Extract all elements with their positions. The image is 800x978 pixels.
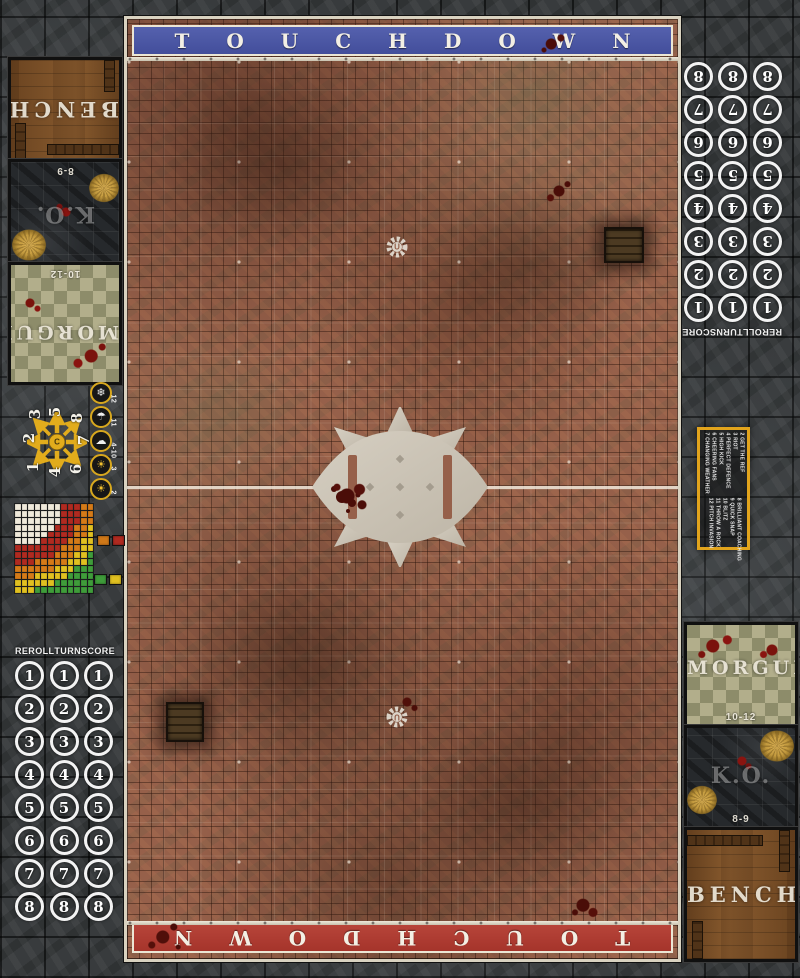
ruler-cell-short-pass [55, 525, 61, 531]
ruler-cell-out-of-range [88, 552, 94, 558]
ruler-cell-out-of-range [61, 580, 67, 586]
ruler-cell-quick-pass [15, 532, 21, 538]
ruler-cell-short-pass [55, 545, 61, 551]
morgue-range-label: 10-12 [11, 268, 119, 279]
counter-circle-2: 2 [684, 260, 713, 289]
counter-circle-3: 3 [684, 227, 713, 256]
ruler-chip [112, 535, 125, 546]
ruler-cell-long-pass [61, 545, 67, 551]
ruler-cell-long-pass [88, 511, 94, 517]
ruler-cell-long-bomb [41, 580, 47, 586]
gear-icon: U [384, 234, 410, 260]
counter-row: 777 [15, 859, 113, 888]
ruler-cell-out-of-range [88, 587, 94, 593]
morgue-range-label: 10-12 [687, 712, 795, 723]
counter-circle-2: 2 [753, 260, 782, 289]
ruler-chip [97, 535, 110, 546]
ko-range-label: 8-9 [11, 165, 119, 176]
ruler-chips-a [97, 535, 125, 546]
ruler-cell-long-pass [48, 559, 54, 565]
weather-track: ❄12☂11☁4-10☀3☀2 [90, 381, 124, 501]
ruler-cell-quick-pass [22, 525, 28, 531]
dugout-ko-bottom: K.O. 8-9 [684, 725, 798, 831]
counter-circle-4: 4 [719, 194, 748, 223]
ruler-cell-short-pass [28, 545, 34, 551]
kickoff-entry: 7 CHANGING WEATHER [703, 432, 710, 493]
counter-circle-4: 4 [50, 760, 79, 789]
ruler-cell-quick-pass [55, 504, 61, 510]
ruler-chips-b [94, 574, 122, 585]
ruler-cell-long-bomb [28, 580, 34, 586]
ruler-cell-short-pass [61, 525, 67, 531]
touchdown-text-bottom: TOUCHDOWN [137, 926, 667, 950]
touchdown-banner-top: TOUCHDOWN [132, 25, 673, 56]
scatter-direction-4: 4 [46, 467, 64, 477]
ruler-cell-out-of-range [68, 573, 74, 579]
counter-header: TURN [716, 327, 743, 337]
dugout-bench-bottom: BENCH [684, 827, 798, 962]
kickoff-column-1: 2 GET THE REF3 RIOT4 PERFECT DEFENCE5 HI… [702, 432, 745, 493]
ruler-cell-long-pass [61, 559, 67, 565]
pitch-stain [427, 189, 637, 339]
counter-row: 333 [684, 227, 782, 256]
ruler-cell-short-pass [68, 518, 74, 524]
ruler-cell-quick-pass [55, 518, 61, 524]
ruler-cell-long-pass [88, 504, 94, 510]
ruler-cell-short-pass [61, 511, 67, 517]
scatter-direction-2: 2 [20, 433, 38, 443]
ruler-cell-long-bomb [88, 532, 94, 538]
counter-row: 888 [15, 892, 113, 921]
ruler-cell-quick-pass [28, 518, 34, 524]
ruler-cell-short-pass [35, 545, 41, 551]
ruler-cell-short-pass [41, 538, 47, 544]
weather-range: 2 [110, 491, 117, 495]
ruler-cell-out-of-range [81, 566, 87, 572]
counter-circle-1: 1 [84, 661, 113, 690]
ruler-cell-out-of-range [74, 587, 80, 593]
counter-circle-5: 5 [15, 793, 44, 822]
kickoff-entry: 6 CHEERING FANS [710, 432, 717, 493]
kickoff-entry: 5 HIGH KICK [717, 432, 724, 493]
counter-circle-3: 3 [84, 727, 113, 756]
ruler-cell-short-pass [61, 538, 67, 544]
ko-range-label: 8-9 [687, 814, 795, 825]
counter-circle-7: 7 [719, 95, 748, 124]
touchdown-banner-bottom: TOUCHDOWN [132, 922, 673, 953]
ruler-cell-long-bomb [88, 525, 94, 531]
spiked-ball-emblem [300, 407, 500, 567]
counter-row: 444 [684, 194, 782, 223]
ruler-cell-short-pass [22, 559, 28, 565]
ruler-cell-long-bomb [15, 580, 21, 586]
counter-row: 111 [684, 293, 782, 322]
weather-range: 12 [110, 395, 117, 404]
ruler-cell-short-pass [22, 545, 28, 551]
ruler-cell-short-pass [15, 545, 21, 551]
ruler-cell-long-pass [74, 538, 80, 544]
counter-header: TURN [54, 646, 81, 656]
pitch-stain [187, 579, 427, 769]
ruler-cell-out-of-range [74, 573, 80, 579]
ruler-cell-quick-pass [41, 504, 47, 510]
ruler-cell-long-bomb [81, 552, 87, 558]
scatter-center-glyph: C [54, 438, 60, 447]
ruler-cell-quick-pass [28, 538, 34, 544]
ruler-cell-short-pass [48, 538, 54, 544]
ruler-cell-quick-pass [48, 504, 54, 510]
ruler-cell-long-pass [22, 566, 28, 572]
counter-row: 333 [15, 727, 113, 756]
ruler-cell-out-of-range [88, 580, 94, 586]
weather-row: ☀3 [90, 453, 124, 477]
weather-row: ❄12 [90, 381, 124, 405]
ruler-cell-short-pass [68, 525, 74, 531]
counter-circle-6: 6 [753, 128, 782, 157]
counter-circle-1: 1 [719, 293, 748, 322]
svg-text:U: U [394, 243, 400, 252]
ruler-cell-long-bomb [48, 580, 54, 586]
ruler-cell-long-bomb [81, 559, 87, 565]
ruler-cell-long-pass [81, 504, 87, 510]
ruler-chip [94, 574, 107, 585]
counter-circle-7: 7 [753, 95, 782, 124]
counter-circle-7: 7 [684, 95, 713, 124]
ruler-cell-long-bomb [28, 587, 34, 593]
ruler-cell-quick-pass [48, 511, 54, 517]
ruler-cell-short-pass [74, 518, 80, 524]
weather-row: ☀2 [90, 477, 124, 501]
ruler-cell-quick-pass [22, 511, 28, 517]
ruler-cell-quick-pass [48, 525, 54, 531]
ruler-cell-short-pass [22, 552, 28, 558]
ruler-cell-quick-pass [41, 525, 47, 531]
ruler-cell-long-pass [81, 518, 87, 524]
ruler-cell-out-of-range [74, 580, 80, 586]
ruler-cell-long-bomb [88, 545, 94, 551]
ruler-cell-long-pass [22, 573, 28, 579]
ruler-cell-short-pass [48, 532, 54, 538]
counter-circle-8: 8 [50, 892, 79, 921]
counter-circle-6: 6 [684, 128, 713, 157]
counter-headers: REROLLTURNSCORE [15, 646, 113, 656]
ruler-cell-long-pass [81, 525, 87, 531]
ruler-cell-quick-pass [41, 518, 47, 524]
ruler-cell-out-of-range [88, 559, 94, 565]
ruler-cell-long-bomb [68, 566, 74, 572]
range-ruler [14, 503, 94, 594]
counter-circle-7: 7 [50, 859, 79, 888]
counter-circle-5: 5 [684, 161, 713, 190]
ruler-cell-long-pass [74, 525, 80, 531]
kickoff-entry: 8 BRILLIANT COACHING [734, 497, 741, 560]
counter-circle-1: 1 [15, 661, 44, 690]
ruler-cell-long-pass [41, 559, 47, 565]
bench-label: BENCH [687, 882, 795, 907]
gear-icon: U [384, 704, 410, 730]
ruler-cell-long-pass [35, 559, 41, 565]
ruler-cell-quick-pass [15, 518, 21, 524]
blood-splatter [565, 889, 605, 925]
ruler-cell-long-pass [15, 573, 21, 579]
ruler-cell-out-of-range [41, 587, 47, 593]
weather-row: ☁4-10 [90, 429, 124, 453]
ruler-cell-quick-pass [28, 504, 34, 510]
counter-circle-4: 4 [684, 194, 713, 223]
ruler-cell-short-pass [15, 552, 21, 558]
counter-circle-7: 7 [84, 859, 113, 888]
ruler-cell-long-pass [55, 559, 61, 565]
ruler-cell-short-pass [41, 545, 47, 551]
ruler-cell-out-of-range [48, 587, 54, 593]
counter-panel-bottom: REROLLTURNSCORE111222333444555666777888 [15, 646, 113, 925]
counter-row: 444 [15, 760, 113, 789]
scatter-direction-3: 3 [26, 409, 44, 419]
ruler-cell-short-pass [48, 545, 54, 551]
svg-text:U: U [394, 712, 400, 721]
ruler-cell-quick-pass [41, 532, 47, 538]
ruler-cell-long-bomb [81, 538, 87, 544]
ruler-cell-short-pass [61, 518, 67, 524]
blood-splatter [542, 174, 576, 208]
ruler-cell-quick-pass [22, 538, 28, 544]
counter-row: 666 [684, 128, 782, 157]
ruler-cell-long-pass [68, 538, 74, 544]
ruler-cell-short-pass [48, 552, 54, 558]
counter-panel-top: REROLLTURNSCORE111222333444555666777888 [684, 58, 782, 337]
ruler-cell-quick-pass [35, 525, 41, 531]
ruler-cell-long-pass [68, 552, 74, 558]
ruler-cell-quick-pass [35, 511, 41, 517]
ruler-cell-long-pass [61, 552, 67, 558]
ruler-cell-out-of-range [35, 587, 41, 593]
ruler-cell-short-pass [68, 504, 74, 510]
ruler-cell-short-pass [41, 552, 47, 558]
ruler-cell-quick-pass [35, 532, 41, 538]
kickoff-entry: 3 RIOT [731, 432, 738, 493]
counter-row: 555 [15, 793, 113, 822]
ruler-cell-quick-pass [35, 504, 41, 510]
weather-row: ☂11 [90, 405, 124, 429]
ruler-cell-quick-pass [28, 525, 34, 531]
counter-circle-4: 4 [84, 760, 113, 789]
scatter-direction-5: 5 [46, 407, 64, 417]
ruler-cell-long-pass [35, 566, 41, 572]
counter-headers: REROLLTURNSCORE [684, 327, 782, 337]
ruler-cell-short-pass [61, 504, 67, 510]
scatter-direction-6: 6 [67, 464, 85, 474]
ruler-cell-out-of-range [68, 580, 74, 586]
ruler-cell-long-pass [81, 511, 87, 517]
ruler-cell-long-pass [55, 552, 61, 558]
counter-circle-5: 5 [719, 161, 748, 190]
ruler-cell-out-of-range [61, 587, 67, 593]
ruler-cell-long-bomb [74, 559, 80, 565]
counter-header: REROLL [743, 327, 782, 337]
counter-row: 555 [684, 161, 782, 190]
ruler-cell-long-pass [48, 566, 54, 572]
counter-row: 222 [684, 260, 782, 289]
ruler-cell-short-pass [55, 538, 61, 544]
counter-row: 777 [684, 95, 782, 124]
counter-circle-3: 3 [753, 227, 782, 256]
ruler-cell-long-pass [15, 566, 21, 572]
pitch-moss [147, 349, 307, 469]
counter-row: 222 [15, 694, 113, 723]
ruler-cell-out-of-range [81, 580, 87, 586]
endzone-line-bottom [127, 921, 678, 925]
counter-circle-3: 3 [719, 227, 748, 256]
counter-circle-6: 6 [84, 826, 113, 855]
kickoff-entry: 11 THROW A ROCK [713, 497, 720, 560]
ruler-cell-long-pass [41, 566, 47, 572]
dugout-morgue-top: MORGUE 10-12 [8, 262, 122, 385]
blood-bowl-mat: TOUCHDOWN TOUCHDOWN [0, 0, 800, 978]
kickoff-column-2: 8 BRILLIANT COACHING9 QUICK SNAP10 BLITZ… [702, 497, 745, 560]
trapdoor-crate [604, 227, 644, 263]
endzone-line-top [127, 57, 678, 61]
morgue-label: MORGUE [11, 321, 119, 343]
ruler-cell-long-bomb [74, 552, 80, 558]
counter-circle-7: 7 [15, 859, 44, 888]
ruler-cell-long-bomb [22, 580, 28, 586]
counter-circle-5: 5 [84, 793, 113, 822]
ruler-cell-long-bomb [55, 566, 61, 572]
ruler-cell-long-bomb [55, 573, 61, 579]
counter-circle-4: 4 [15, 760, 44, 789]
morgue-label: MORGUE [687, 657, 795, 679]
counter-circle-2: 2 [50, 694, 79, 723]
kickoff-entry: 2 GET THE REF [738, 432, 745, 493]
ruler-cell-short-pass [28, 559, 34, 565]
ruler-cell-short-pass [28, 552, 34, 558]
counter-circle-1: 1 [684, 293, 713, 322]
ruler-cell-long-bomb [81, 545, 87, 551]
counter-circle-2: 2 [15, 694, 44, 723]
touchdown-text-top: TOUCHDOWN [137, 29, 667, 53]
ruler-cell-short-pass [74, 511, 80, 517]
counter-circle-8: 8 [719, 62, 748, 91]
ruler-cell-out-of-range [81, 587, 87, 593]
counter-circle-8: 8 [84, 892, 113, 921]
ruler-cell-quick-pass [22, 518, 28, 524]
ruler-cell-quick-pass [15, 538, 21, 544]
ruler-cell-out-of-range [55, 580, 61, 586]
weather-range: 3 [110, 467, 117, 471]
ruler-cell-long-pass [28, 573, 34, 579]
counter-circle-4: 4 [753, 194, 782, 223]
counter-circle-1: 1 [753, 293, 782, 322]
ruler-cell-long-bomb [61, 573, 67, 579]
ko-label: K.O. [11, 202, 119, 228]
ruler-cell-short-pass [68, 511, 74, 517]
ruler-cell-long-bomb [35, 573, 41, 579]
ruler-cell-long-bomb [68, 559, 74, 565]
counter-header: SCORE [81, 646, 115, 656]
ruler-cell-quick-pass [35, 538, 41, 544]
pitch-stain [167, 79, 397, 249]
ruler-cell-out-of-range [74, 566, 80, 572]
ko-label: K.O. [687, 763, 795, 789]
ruler-cell-long-bomb [15, 587, 21, 593]
sweltering-sun-icon: ☀ [90, 478, 112, 500]
sunny-icon: ☀ [90, 454, 112, 476]
scatter-direction-1: 1 [24, 462, 42, 472]
ruler-cell-long-pass [74, 532, 80, 538]
ruler-cell-long-bomb [61, 566, 67, 572]
kickoff-entry: 9 QUICK SNAP [727, 497, 734, 560]
counter-circle-6: 6 [719, 128, 748, 157]
ruler-cell-long-bomb [48, 573, 54, 579]
dugout-morgue-bottom: MORGUE 10-12 [684, 622, 798, 729]
counter-circle-3: 3 [50, 727, 79, 756]
counter-circle-3: 3 [15, 727, 44, 756]
counter-circle-5: 5 [50, 793, 79, 822]
ruler-cell-quick-pass [55, 511, 61, 517]
ruler-cell-quick-pass [35, 518, 41, 524]
kickoff-entry: 12 PITCH INVASION [706, 497, 713, 560]
ruler-cell-out-of-range [88, 566, 94, 572]
dugout-bench-top: BENCH [8, 57, 122, 162]
ruler-cell-quick-pass [48, 518, 54, 524]
ruler-cell-quick-pass [28, 511, 34, 517]
counter-circle-6: 6 [15, 826, 44, 855]
bench-label: BENCH [11, 98, 119, 123]
ruler-cell-quick-pass [15, 525, 21, 531]
scatter-direction-8: 8 [68, 413, 86, 423]
counter-circle-1: 1 [50, 661, 79, 690]
counter-row: 888 [684, 62, 782, 91]
ruler-cell-quick-pass [22, 504, 28, 510]
kickoff-entry: 4 PERFECT DEFENCE [724, 432, 731, 493]
ruler-cell-out-of-range [55, 587, 61, 593]
kickoff-entry: 10 BLITZ [720, 497, 727, 560]
ruler-cell-long-pass [68, 545, 74, 551]
ruler-chip [109, 574, 122, 585]
dugout-ko-top: K.O. 8-9 [8, 159, 122, 266]
counter-circle-8: 8 [753, 62, 782, 91]
ruler-cell-quick-pass [28, 532, 34, 538]
counter-circle-8: 8 [15, 892, 44, 921]
ruler-cell-short-pass [15, 559, 21, 565]
counter-row: 111 [15, 661, 113, 690]
counter-circle-2: 2 [84, 694, 113, 723]
ruler-cell-long-bomb [88, 538, 94, 544]
ruler-cell-quick-pass [41, 511, 47, 517]
ruler-cell-short-pass [74, 504, 80, 510]
ruler-cell-short-pass [61, 532, 67, 538]
counter-row: 666 [15, 826, 113, 855]
ruler-cell-short-pass [55, 532, 61, 538]
ruler-cell-short-pass [68, 532, 74, 538]
ruler-cell-out-of-range [68, 587, 74, 593]
counter-circle-5: 5 [753, 161, 782, 190]
scatter-direction-7: 7 [75, 435, 93, 445]
pitch: TOUCHDOWN TOUCHDOWN [124, 16, 681, 962]
kickoff-table: 2 GET THE REF3 RIOT4 PERFECT DEFENCE5 HI… [697, 427, 750, 550]
counter-circle-8: 8 [684, 62, 713, 91]
trapdoor-crate [166, 702, 204, 742]
ruler-cell-quick-pass [15, 511, 21, 517]
pitch-stain [417, 719, 637, 889]
counter-circle-2: 2 [719, 260, 748, 289]
ruler-cell-long-bomb [22, 587, 28, 593]
counter-header: SCORE [682, 327, 716, 337]
ruler-cell-long-pass [74, 545, 80, 551]
ruler-cell-out-of-range [81, 573, 87, 579]
counter-circle-6: 6 [50, 826, 79, 855]
counter-header: REROLL [15, 646, 54, 656]
